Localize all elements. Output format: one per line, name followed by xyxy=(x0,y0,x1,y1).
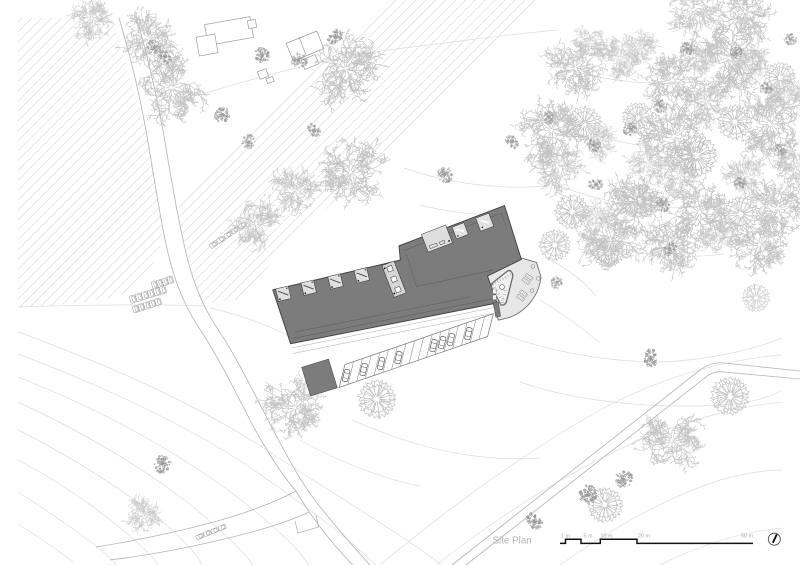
svg-text:1 m: 1 m xyxy=(561,534,570,540)
svg-text:20 m: 20 m xyxy=(638,534,650,540)
svg-text:Site Plan: Site Plan xyxy=(493,536,532,547)
svg-text:50 m: 50 m xyxy=(741,534,753,540)
svg-text:5 m: 5 m xyxy=(584,534,593,540)
svg-text:10 m: 10 m xyxy=(601,534,613,540)
